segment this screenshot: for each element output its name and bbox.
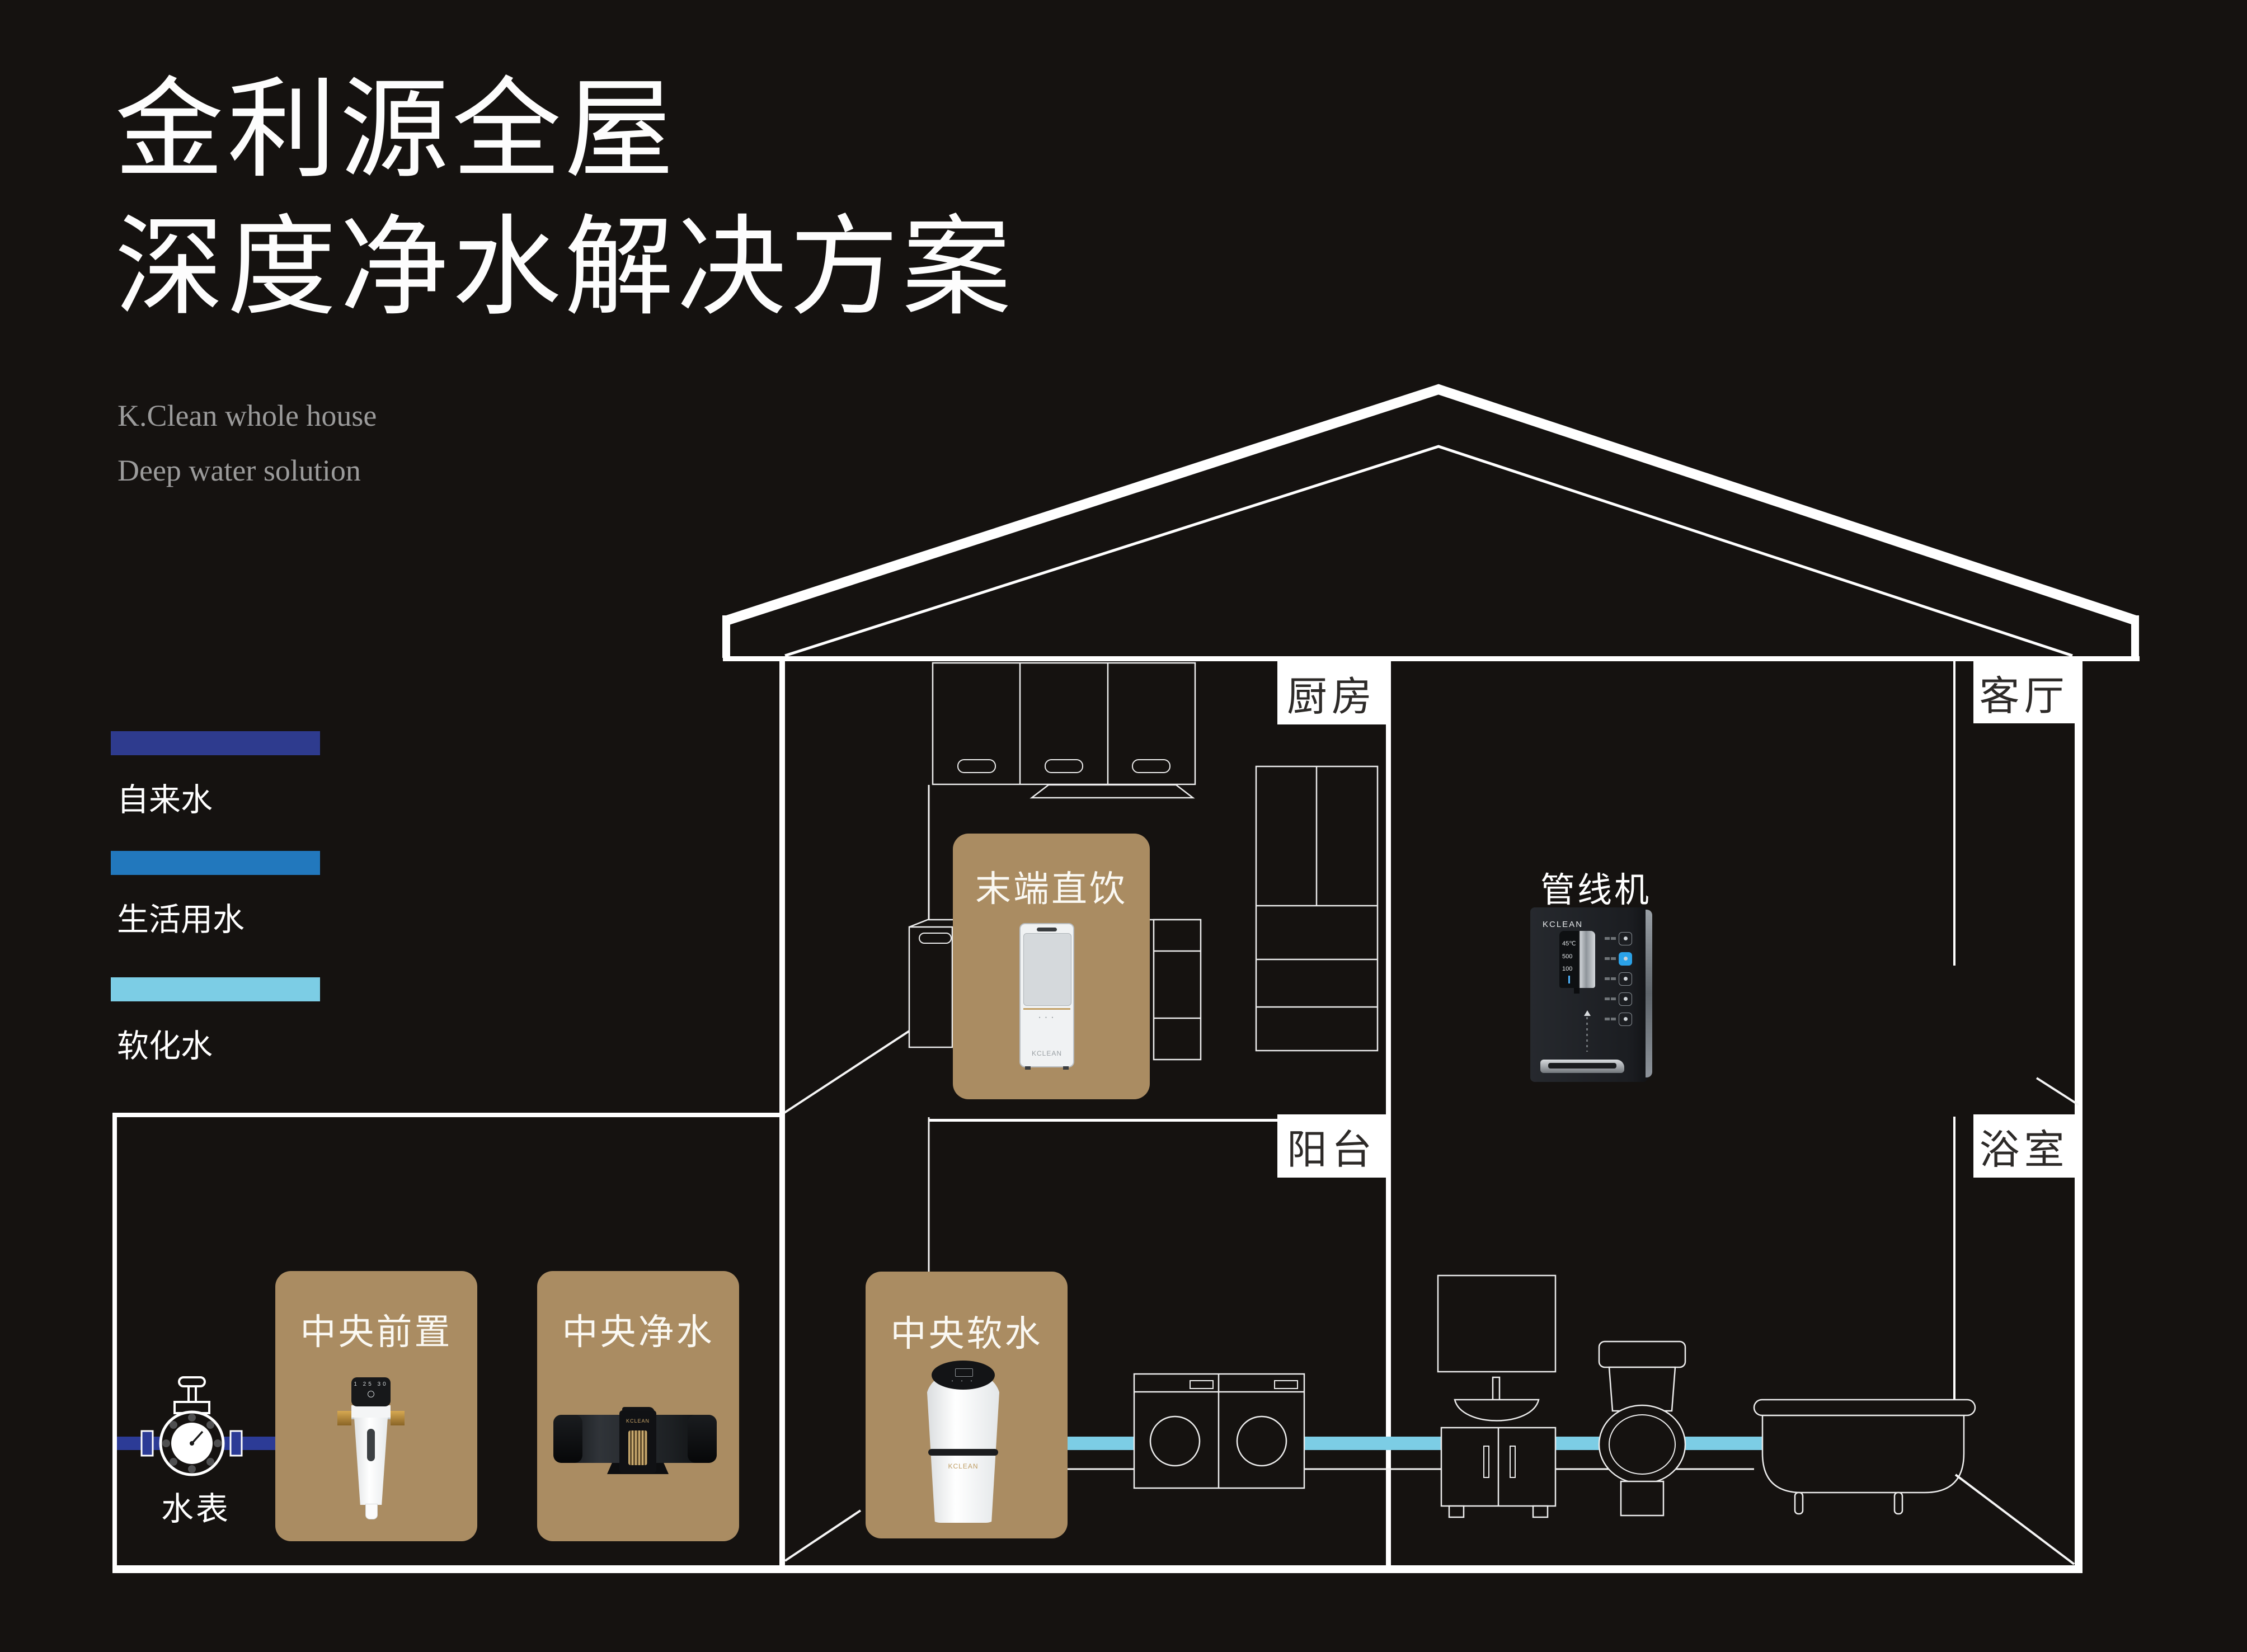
bath-wall-lower (1953, 1117, 1955, 1404)
balcony-label-text: 阳台 (1287, 1117, 1376, 1175)
page-subtitle: K.Clean whole houseDeep water solution (117, 388, 377, 498)
ro-control-icons: • • • (1021, 1015, 1073, 1020)
station-pipeline-title: 管线机 (1534, 862, 1657, 912)
right-eave (2131, 615, 2139, 658)
floor (112, 1565, 2083, 1573)
button-label-mark (1605, 957, 1616, 960)
milk-water-button (1619, 992, 1632, 1006)
purifier-end-cap-left (553, 1415, 582, 1463)
bathtub-body (1762, 1415, 1964, 1493)
power-icon (368, 1391, 374, 1397)
pipeline-caption-column (1586, 1017, 1588, 1052)
station-terminal-drinking: 末端直饮 • • • KCLEAN (953, 834, 1150, 1099)
button-icon (1624, 977, 1628, 981)
legend-swatch-softened-water (111, 977, 320, 1001)
pipeline-side-edge (1646, 910, 1652, 1077)
station-prefilter: 中央前置 1 25 30 (275, 1271, 477, 1541)
softener-band (928, 1449, 998, 1456)
station-terminal-title: 末端直饮 (953, 860, 1150, 912)
pipeline-tds-readout: 100 (1562, 966, 1572, 972)
faucet (1493, 1377, 1499, 1401)
meter-flange-left (142, 1431, 153, 1456)
drip-tray-slot (1548, 1063, 1616, 1069)
room-label-kitchen: 厨房 (1277, 661, 1386, 724)
bathroom-label-text: 浴室 (1979, 1117, 2069, 1175)
station-softener: 中央软水 • • • KCLEAN (866, 1272, 1068, 1538)
pipeline-level-indicator (1568, 976, 1570, 983)
pipeline-brand-logo: KCLEAN (1543, 920, 1583, 929)
toilet-base (1621, 1481, 1663, 1515)
button-label-mark (1605, 977, 1616, 980)
utility-left-wall (112, 1113, 117, 1565)
button-icon (1624, 1017, 1628, 1021)
subtitle-line-1: K.Clean whole house (117, 399, 377, 432)
softener-tank (926, 1374, 1000, 1523)
prefilter-display-head: 1 25 30 (351, 1377, 391, 1406)
station-purifier: 中央净水 KCLEAN (537, 1271, 739, 1541)
legend-label-domestic-water: 生活用水 (117, 894, 245, 940)
purifier-brand-logo: KCLEAN (619, 1418, 656, 1424)
bathtub-rim (1754, 1400, 1975, 1415)
utility-top-wall (112, 1113, 779, 1117)
upper-cabinets (933, 663, 1195, 784)
softener-control-panel: • • • (932, 1361, 995, 1390)
title-line-2: 深度净水解决方案 (115, 208, 1014, 329)
lock-button (1619, 1013, 1632, 1026)
softener-brand-logo: KCLEAN (926, 1462, 1000, 1470)
room-label-living: 客厅 (1973, 661, 2075, 723)
sink-cabinet-left (909, 927, 952, 1047)
prefilter-device: 1 25 30 (337, 1377, 405, 1524)
ceiling (723, 656, 2140, 661)
station-prefilter-title: 中央前置 (275, 1303, 477, 1355)
softener-buttons: • • • (945, 1378, 982, 1383)
softener-display (955, 1368, 973, 1377)
bathtub-leg-2 (1895, 1493, 1902, 1514)
legend-label-softened-water: 软化水 (117, 1020, 213, 1066)
bathroom-corner-line (1955, 1475, 2074, 1564)
roof-inner-line (785, 446, 2072, 656)
vanity-foot-1 (1449, 1506, 1464, 1517)
water-meter-label: 水表 (134, 1482, 257, 1529)
ro-foot-left (1025, 1066, 1031, 1070)
purifier-end-cap-right (688, 1415, 717, 1463)
left-eave (722, 615, 730, 658)
room-label-balcony: 阳台 (1277, 1114, 1386, 1178)
cold-water-button (1619, 952, 1632, 966)
vanity-mirror (1438, 1276, 1555, 1372)
sink-cabinet-right (1154, 920, 1201, 1060)
poster: 金利源全屋深度净水解决方案 K.Clean whole houseDeep wa… (0, 0, 2247, 1652)
ro-brand-logo: KCLEAN (1021, 1049, 1073, 1057)
station-purifier-title: 中央净水 (537, 1303, 739, 1355)
ro-purifier-device: • • • KCLEAN (1019, 923, 1074, 1067)
legend-swatch-domestic-water (111, 851, 320, 875)
button-icon (1624, 936, 1628, 940)
prefilter-outlet-fitting (391, 1411, 405, 1425)
prefilter-inlet-fitting (337, 1411, 351, 1425)
softener-device: • • • KCLEAN (926, 1361, 1000, 1523)
ro-front-panel (1023, 933, 1071, 1006)
legend-label-tap-water: 自来水 (117, 774, 213, 820)
pipeline-temp-readout: 45℃ (1562, 940, 1576, 947)
left-wall (779, 661, 785, 1568)
toilet-bowl (1599, 1405, 1685, 1484)
purifier-center-column: KCLEAN (619, 1410, 656, 1473)
pipeline-dispenser: 45℃ 500 100 (1559, 931, 1595, 988)
station-softener-title: 中央软水 (866, 1305, 1068, 1357)
prefilter-drain (365, 1504, 378, 1519)
ro-accent-line (1023, 1008, 1070, 1010)
prefilter-display-values: 1 25 30 (351, 1381, 391, 1387)
button-label-mark (1605, 1018, 1616, 1020)
kitchen-wall (1386, 661, 1391, 1568)
ro-foot-right (1063, 1066, 1069, 1070)
button-label-mark (1605, 997, 1616, 1000)
pipeline-flow-readout: 500 (1562, 953, 1572, 960)
button-icon (1624, 957, 1628, 961)
purifier-device: KCLEAN (553, 1407, 717, 1475)
bathtub-leg-1 (1795, 1493, 1803, 1514)
basin (1455, 1400, 1539, 1421)
vanity-foot-2 (1533, 1506, 1548, 1517)
prefilter-neck (351, 1405, 391, 1419)
room-label-bathroom: 浴室 (1973, 1114, 2075, 1178)
range-hood (1032, 785, 1193, 798)
prefilter-sight-window (367, 1429, 375, 1461)
pipeline-spout (1574, 988, 1580, 994)
purifier-filter-window (628, 1430, 647, 1465)
toilet-tank-base (1609, 1367, 1675, 1411)
balcony-door-leaf (785, 1510, 861, 1561)
subtitle-line-2: Deep water solution (117, 454, 361, 487)
legend-swatch-tap-water (111, 731, 320, 755)
living-label-text: 客厅 (1979, 663, 2069, 722)
right-wall (2075, 661, 2083, 1573)
pipeline-machine-device: KCLEAN 45℃ 500 100 (1530, 907, 1648, 1082)
meter-flange-right (231, 1431, 242, 1456)
pipeline-drip-tray (1540, 1060, 1624, 1073)
button-icon (1624, 997, 1628, 1001)
water-meter (142, 1377, 242, 1475)
water-drop-icon (1584, 1007, 1591, 1016)
kitchen-label-text: 厨房 (1287, 663, 1376, 722)
bath-wall-upper (1953, 661, 1955, 966)
toilet-tank (1599, 1342, 1685, 1367)
hot-water-button (1619, 932, 1632, 945)
bathroom-door-leaf (2037, 1078, 2079, 1105)
warm-water-button (1619, 972, 1632, 986)
page-title: 金利源全屋深度净水解决方案 (115, 63, 1014, 337)
kitchen-door-leaf (784, 1031, 909, 1113)
ro-handle-slot (1037, 928, 1057, 931)
title-line-1: 金利源全屋 (115, 70, 677, 191)
roof-outline (727, 389, 2136, 620)
meter-pivot (190, 1441, 194, 1446)
button-label-mark (1605, 937, 1616, 940)
valve-handle (179, 1377, 205, 1386)
